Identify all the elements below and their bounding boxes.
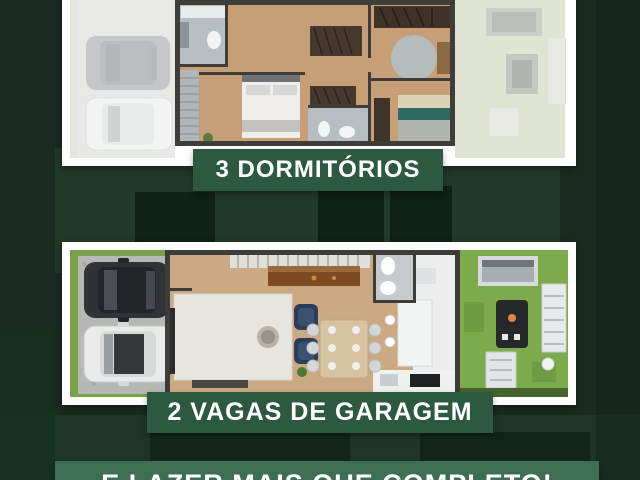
ground-floor-plan xyxy=(62,242,576,405)
garden-seat xyxy=(486,352,516,388)
leisure-banner: E LAZER MAIS QUE COMPLETO! xyxy=(55,461,599,480)
background-left-bush xyxy=(0,330,55,480)
flyer-canvas: 3 DORMITÓRIOS xyxy=(0,0,640,480)
outdoor-sofa xyxy=(478,256,538,286)
bedrooms-banner: 3 DORMITÓRIOS xyxy=(193,149,443,191)
garage-section xyxy=(70,250,172,397)
lounge-chair xyxy=(542,284,566,352)
faded-garage-section xyxy=(70,0,175,158)
garage-banner: 2 VAGAS DE GARAGEM xyxy=(147,392,493,433)
sideboard xyxy=(268,266,360,286)
backyard-section xyxy=(460,250,568,397)
third-bed xyxy=(398,95,454,142)
dining-table xyxy=(307,320,381,378)
sedan-car xyxy=(84,322,172,386)
upper-floor-plan-card xyxy=(62,0,576,166)
master-bed xyxy=(242,75,300,138)
background-right-shade xyxy=(596,0,640,480)
interior-section xyxy=(165,250,460,397)
faded-backyard-section xyxy=(455,0,566,158)
upper-floor-plan xyxy=(62,0,576,166)
upper-floor-rooms xyxy=(175,0,455,146)
suv-car xyxy=(84,258,169,322)
ground-floor-plan-card xyxy=(62,242,576,405)
fire-table xyxy=(496,300,528,348)
